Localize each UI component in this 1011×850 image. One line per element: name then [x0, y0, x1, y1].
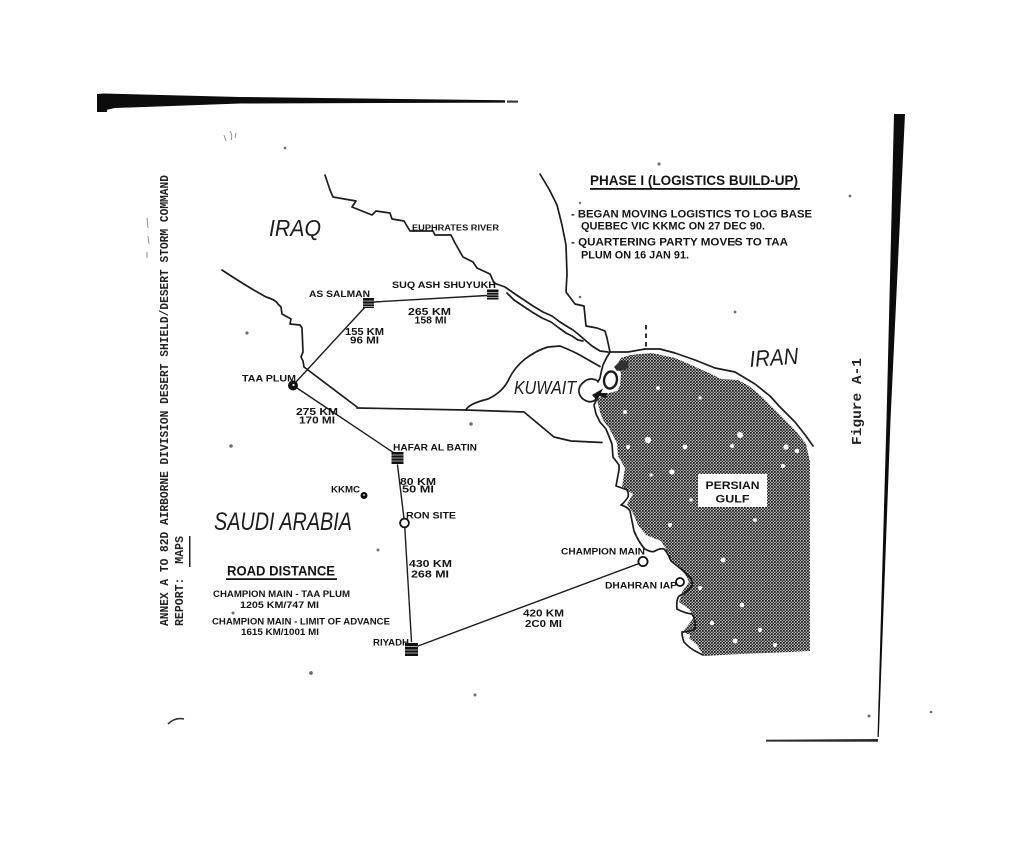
svg-text:DHAHRAN IAP: DHAHRAN IAP — [605, 581, 677, 591]
svg-text:ANNEX A TO 82D AIRBORNE DIVISI: ANNEX A TO 82D AIRBORNE DIVISION DESERT … — [159, 175, 172, 626]
svg-text:EUPHRATES RIVER: EUPHRATES RIVER — [412, 223, 500, 233]
svg-text:KKMC: KKMC — [331, 485, 361, 495]
svg-text:RIYADH: RIYADH — [373, 638, 409, 648]
svg-text:IRAQ: IRAQ — [269, 215, 321, 241]
svg-text:1615 KM/1001 MI: 1615 KM/1001 MI — [241, 627, 319, 637]
svg-text:170 MI: 170 MI — [299, 416, 335, 427]
svg-text:RON SITE: RON SITE — [406, 511, 456, 521]
svg-text:PHASE I (LOGISTICS BUILD-UP): PHASE I (LOGISTICS BUILD-UP) — [590, 172, 798, 188]
svg-text:158 MI: 158 MI — [415, 316, 447, 327]
svg-text:GULF: GULF — [716, 494, 750, 506]
svg-text:CHAMPION MAIN: CHAMPION MAIN — [561, 547, 645, 557]
svg-text:96 MI: 96 MI — [350, 336, 379, 347]
svg-text:- BEGAN MOVING LOGISTICS TO LO: - BEGAN MOVING LOGISTICS TO LOG BASE — [571, 209, 812, 221]
svg-text:SUQ ASH SHUYUKH: SUQ ASH SHUYUKH — [392, 280, 496, 290]
svg-text:- QUARTERING PARTY MOVES TO TA: - QUARTERING PARTY MOVES TO TAA — [571, 237, 788, 249]
svg-text:1205 KM/747 MI: 1205 KM/747 MI — [240, 600, 319, 610]
svg-text:IRAN: IRAN — [749, 343, 800, 372]
svg-text:Figure A-1: Figure A-1 — [850, 358, 866, 445]
svg-text:PLUM ON 16 JAN 91.: PLUM ON 16 JAN 91. — [581, 250, 689, 262]
svg-text:PERSIAN: PERSIAN — [706, 480, 760, 492]
svg-text:QUEBEC VIC KKMC ON 27 DEC 90.: QUEBEC VIC KKMC ON 27 DEC 90. — [581, 221, 765, 233]
svg-text:CHAMPION MAIN - LIMIT OF ADVAN: CHAMPION MAIN - LIMIT OF ADVANCE — [212, 617, 390, 627]
svg-text:420 KM: 420 KM — [523, 609, 564, 620]
svg-text:2C0 MI: 2C0 MI — [525, 619, 562, 630]
svg-text:268 MI: 268 MI — [411, 570, 449, 581]
svg-text:430 KM: 430 KM — [409, 559, 452, 570]
svg-text:AS SALMAN: AS SALMAN — [309, 289, 370, 299]
svg-text:SAUDI ARABIA: SAUDI ARABIA — [214, 508, 352, 536]
svg-text:50 MI: 50 MI — [402, 485, 434, 496]
svg-text:CHAMPION MAIN - TAA PLUM: CHAMPION MAIN - TAA PLUM — [213, 589, 350, 599]
svg-text:KUWAIT: KUWAIT — [514, 378, 578, 398]
svg-text:REPORT: MAPS: REPORT: MAPS — [174, 536, 187, 626]
svg-text:ROAD DISTANCE: ROAD DISTANCE — [227, 563, 335, 579]
svg-text:HAFAR AL BATIN: HAFAR AL BATIN — [393, 443, 477, 453]
svg-text:TAA PLUM: TAA PLUM — [242, 374, 296, 384]
